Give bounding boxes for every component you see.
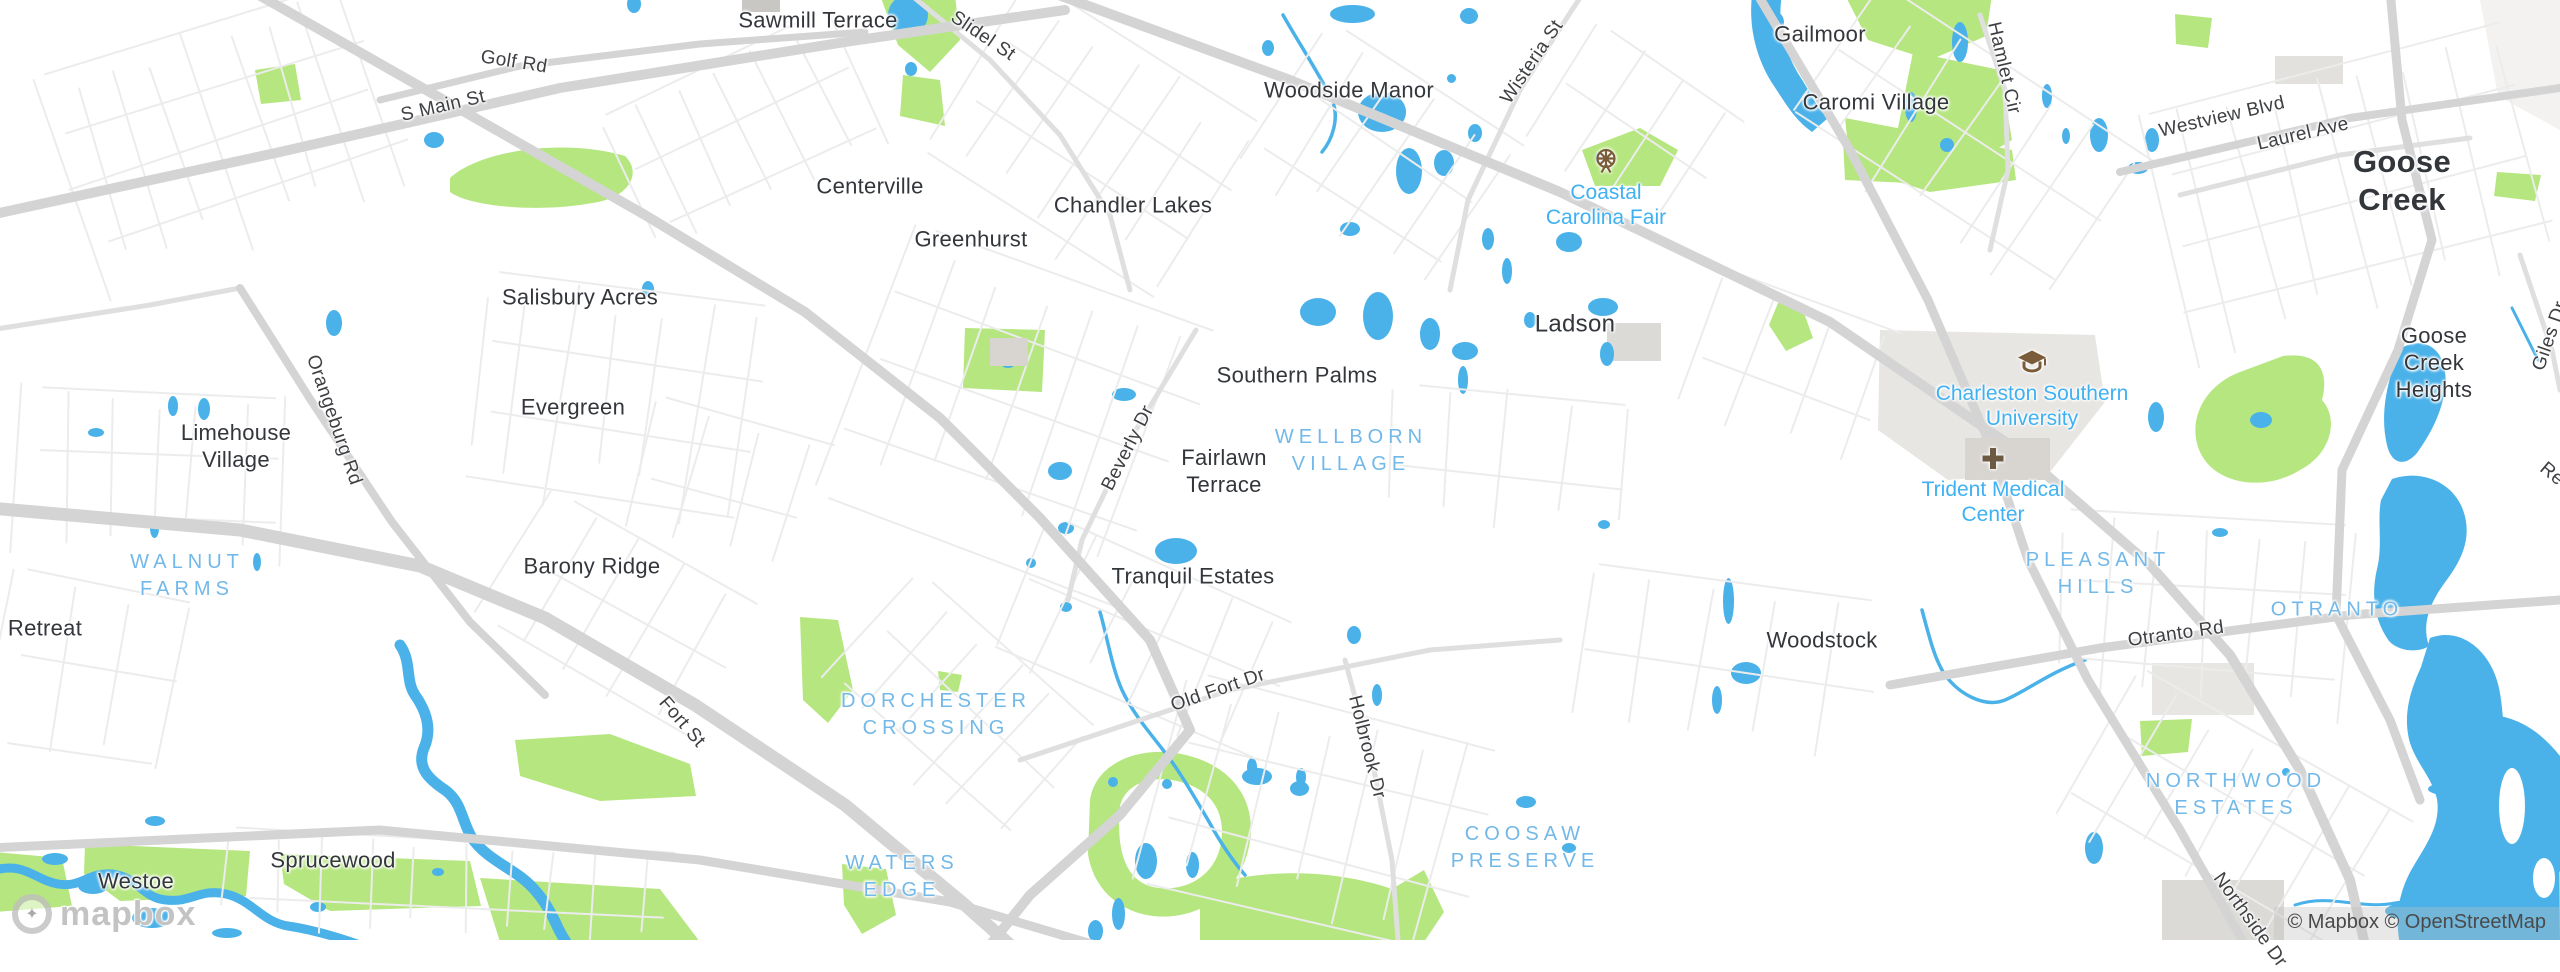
minor-roads-layer	[0, 0, 2560, 940]
map-base-layer	[0, 0, 2560, 940]
map-canvas[interactable]	[0, 0, 2560, 940]
mapbox-wordmark: mapbox	[60, 895, 196, 934]
medium-roads-layer	[0, 0, 2560, 940]
lake-island	[2499, 768, 2525, 844]
map-attribution[interactable]: © Mapbox © OpenStreetMap	[2274, 907, 2560, 940]
mapbox-logo[interactable]: ✦ mapbox	[12, 894, 196, 934]
attribution-text: © Mapbox © OpenStreetMap	[2288, 911, 2547, 933]
major-roads-layer	[0, 0, 2560, 940]
lake-island	[2533, 858, 2555, 898]
ponds-layer	[42, 0, 2495, 940]
mapbox-logo-icon: ✦	[12, 894, 52, 934]
